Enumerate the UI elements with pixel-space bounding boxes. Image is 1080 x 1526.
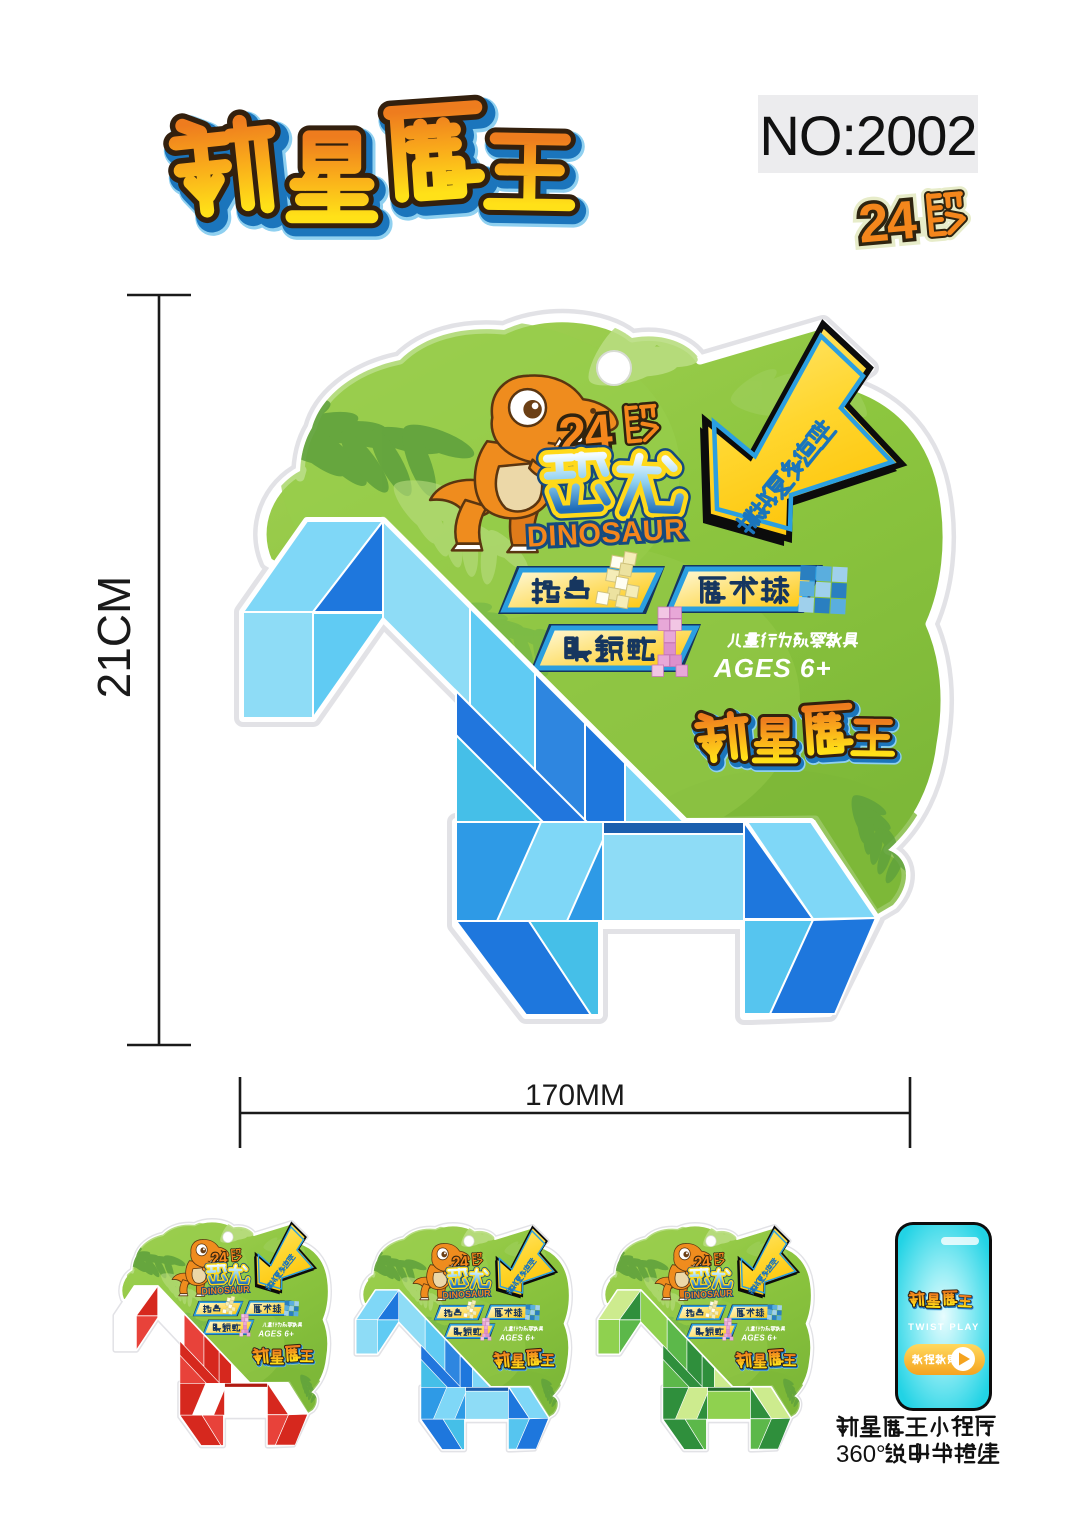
svg-text:AGES 6+: AGES 6+ <box>713 653 832 683</box>
svg-text:NO:2002: NO:2002 <box>759 104 976 167</box>
svg-text:24: 24 <box>856 190 919 255</box>
svg-text:170MM: 170MM <box>525 1079 625 1112</box>
svg-text:360°: 360° <box>836 1441 886 1468</box>
svg-text:TWIST PLAY: TWIST PLAY <box>908 1322 980 1333</box>
svg-text:21CM: 21CM <box>88 576 140 699</box>
